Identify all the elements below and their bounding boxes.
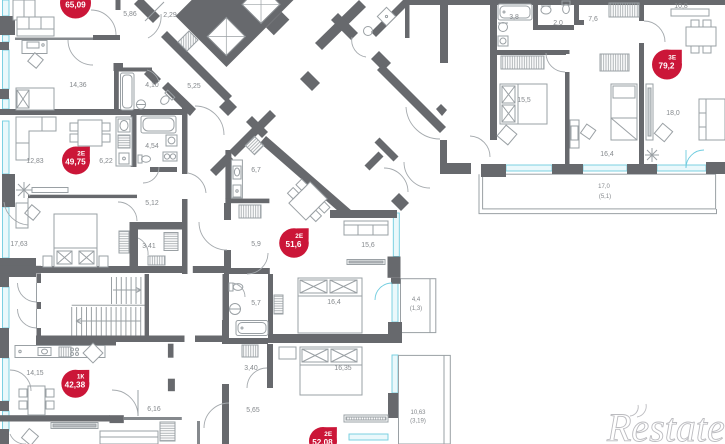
svg-text:3,8: 3,8 [509,14,519,21]
svg-text:4,54: 4,54 [145,143,159,150]
svg-text:(5,1): (5,1) [599,194,611,200]
svg-text:52,08: 52,08 [312,438,333,444]
svg-text:1К: 1К [77,374,85,381]
svg-text:5,12: 5,12 [145,200,159,207]
svg-text:7,6: 7,6 [588,16,598,23]
svg-text:16,4: 16,4 [327,299,341,306]
svg-text:4,10: 4,10 [145,82,159,89]
svg-text:5,25: 5,25 [187,83,201,90]
svg-text:6,22: 6,22 [99,158,113,165]
svg-text:2,29: 2,29 [163,12,177,19]
svg-text:18,0: 18,0 [666,110,680,117]
svg-text:15,5: 15,5 [517,97,531,104]
svg-text:79,2: 79,2 [659,61,675,70]
svg-text:16,35: 16,35 [334,365,351,372]
svg-text:5,65: 5,65 [246,407,260,414]
svg-text:2Е: 2Е [295,233,304,240]
svg-text:5,86: 5,86 [123,11,137,18]
svg-text:51,6: 51,6 [286,240,302,249]
svg-text:Restate: Restate [606,405,725,444]
svg-text:12,83: 12,83 [26,158,43,165]
svg-text:2,0: 2,0 [553,20,563,27]
svg-text:42,38: 42,38 [65,381,86,390]
svg-text:3,41: 3,41 [142,243,156,250]
svg-text:14,15: 14,15 [26,370,43,377]
svg-text:49,75: 49,75 [65,157,86,166]
svg-text:(1,3): (1,3) [410,306,422,312]
svg-text:16,4: 16,4 [600,151,614,158]
svg-text:5,9: 5,9 [251,241,261,248]
svg-text:3,40: 3,40 [244,365,258,372]
svg-text:6,16: 6,16 [147,406,161,413]
svg-text:10,63: 10,63 [410,410,426,416]
svg-text:10,8: 10,8 [674,3,688,10]
svg-text:15,6: 15,6 [361,242,375,249]
svg-text:6,7: 6,7 [251,167,261,174]
svg-text:14,36: 14,36 [69,82,86,89]
svg-text:17,63: 17,63 [10,241,27,248]
svg-text:2Е: 2Е [77,150,86,157]
svg-text:(3,19): (3,19) [410,419,426,425]
svg-text:2Е: 2Е [324,431,333,438]
svg-text:65,09: 65,09 [65,1,86,10]
svg-text:17,0: 17,0 [598,184,610,190]
svg-text:3Е: 3Е [668,54,677,61]
svg-text:4,4: 4,4 [412,297,421,303]
svg-text:5,7: 5,7 [251,300,261,307]
